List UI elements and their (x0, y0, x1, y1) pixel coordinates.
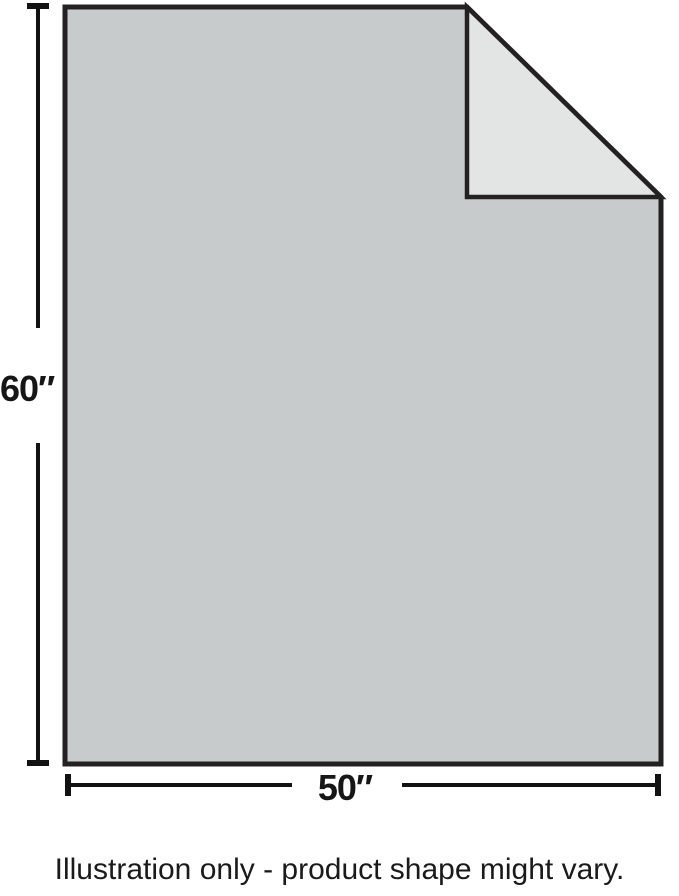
product-illustration (0, 0, 679, 896)
blanket-fold-corner (467, 7, 661, 197)
width-dimension-label: 50″ (300, 770, 390, 806)
height-dimension-label: 60″ (0, 371, 56, 407)
caption: Illustration only - product shape might … (0, 852, 679, 888)
product-dimension-illustration-page: 60″ 50″ Illustration only - product shap… (0, 0, 679, 896)
